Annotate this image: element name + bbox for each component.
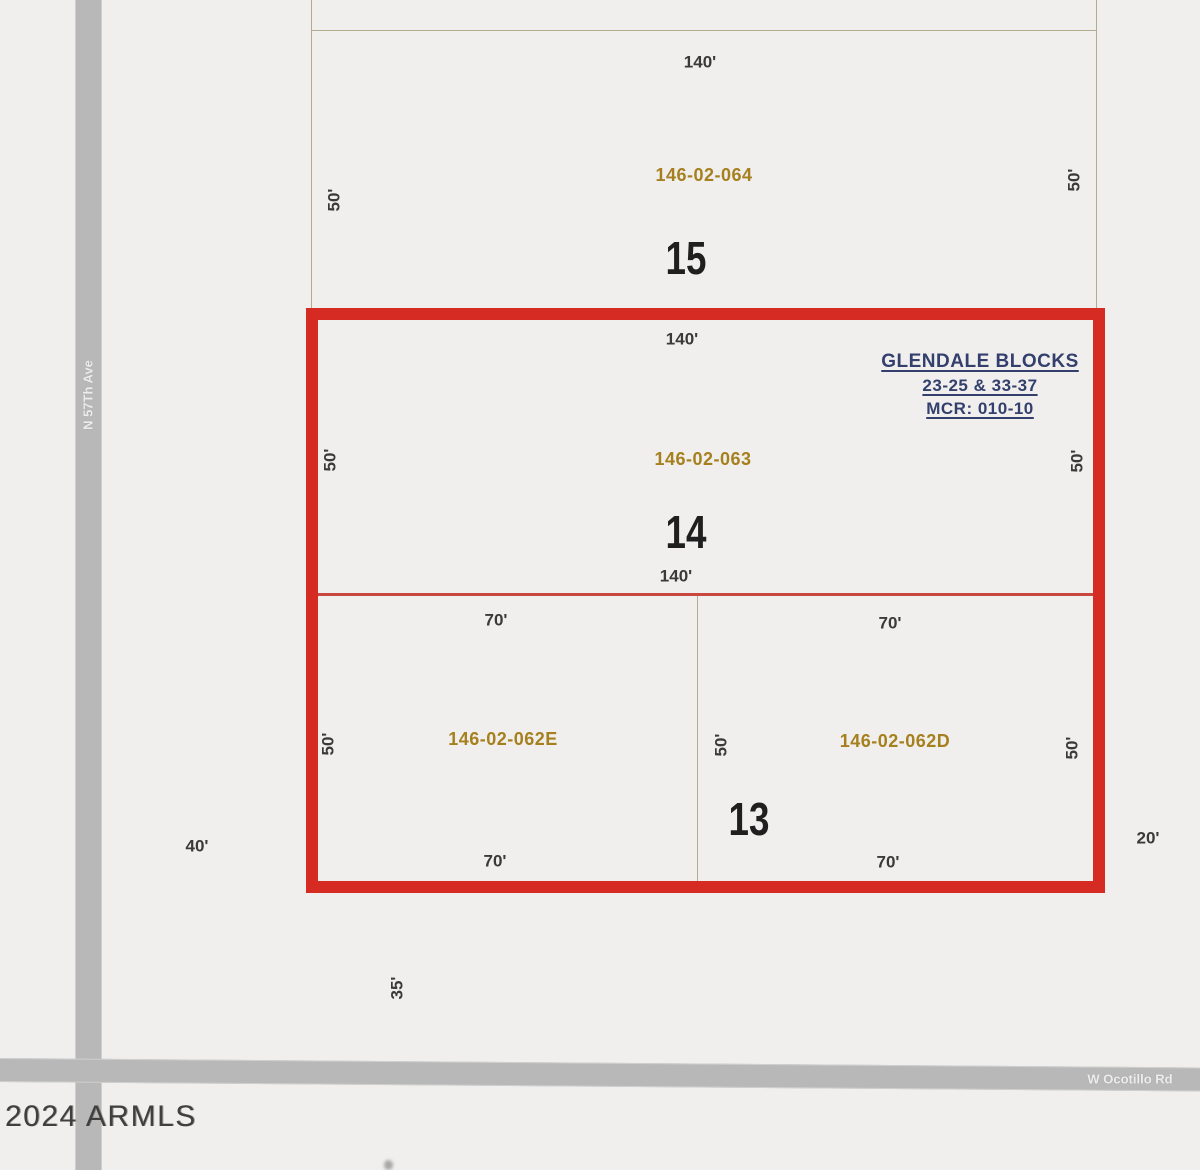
block-number-13: 13 (729, 796, 770, 842)
plat-note-mcr: MCR: 010-10 (926, 399, 1034, 419)
road-n-57th-ave (75, 0, 102, 1170)
dim-label-lotD-right: 50' (1064, 737, 1081, 760)
apn-label-b15: 146-02-064 (655, 166, 752, 184)
parcel-line-west (311, 0, 312, 308)
dim-label-b15-top: 140' (684, 54, 716, 71)
plat-note-title: GLENDALE BLOCKS (881, 351, 1079, 373)
dim-label-lotD-top: 70' (879, 615, 902, 632)
dim-label-east-20: 20' (1137, 830, 1160, 847)
dim-label-south-35: 35' (389, 977, 406, 1000)
dim-label-b14-left: 50' (322, 449, 339, 472)
block-number-14: 14 (666, 509, 707, 555)
dim-label-b15-right: 50' (1066, 169, 1083, 192)
cutoff-label-artifact (384, 1160, 393, 1170)
plat-map: N 57Th Ave W Ocotillo Rd 140' 146-02-064… (0, 0, 1200, 1170)
apn-label-lotD: 146-02-062D (840, 732, 951, 750)
dim-label-b15-left: 50' (326, 189, 343, 212)
road-w-ocotillo-rd (0, 1058, 1200, 1092)
dim-label-lotD-bottom: 70' (877, 854, 900, 871)
apn-label-b14: 146-02-063 (654, 450, 751, 468)
dim-label-b14-right: 50' (1069, 450, 1086, 473)
parcel-line-east (1096, 0, 1097, 308)
dim-label-b14-bottom: 140' (660, 568, 692, 585)
dim-label-lotE-top: 70' (485, 612, 508, 629)
apn-label-lotE: 146-02-062E (448, 730, 558, 748)
plat-note-blocks: 23-25 & 33-37 (922, 376, 1037, 396)
street-label-n-57th-ave: N 57Th Ave (81, 360, 96, 430)
block14-block13-divider-line (318, 593, 1093, 596)
block-number-15: 15 (666, 235, 707, 281)
dim-label-west-40: 40' (186, 838, 209, 855)
dim-label-b14-top: 140' (666, 331, 698, 348)
dim-label-lotD-left: 50' (713, 734, 730, 757)
parcel-line-north (311, 30, 1097, 31)
watermark: 2024 ARMLS (5, 1100, 197, 1134)
street-label-w-ocotillo-rd: W Ocotillo Rd (1087, 1072, 1172, 1087)
dim-label-lotE-left: 50' (320, 733, 337, 756)
block13-lot-divider-line (697, 596, 698, 881)
dim-label-lotE-bottom: 70' (484, 853, 507, 870)
